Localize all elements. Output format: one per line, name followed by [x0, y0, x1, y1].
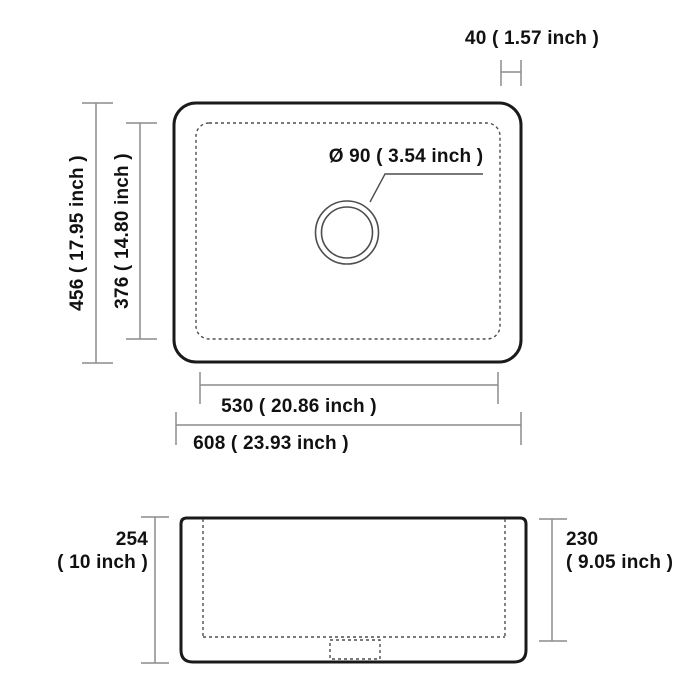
- dim-label-outer-depth-mm: 254: [57, 528, 148, 551]
- dim-label-inner-depth: 230 ( 9.05 inch ): [566, 528, 673, 574]
- dim-label-outer-depth-inch: ( 10 inch ): [57, 551, 148, 574]
- dim-label-outer-width: 608 ( 23.93 inch ): [193, 433, 349, 455]
- drawing-lines-layer: [0, 0, 700, 700]
- sink-side-view: [181, 518, 526, 662]
- sink-side-view-outline: [181, 518, 526, 662]
- dim-line-inner-depth: [539, 519, 567, 641]
- sink-dimension-diagram: 40 ( 1.57 inch ) Ø 90 ( 3.54 inch ) 456 …: [0, 0, 700, 700]
- drain-circle-outer: [316, 201, 379, 264]
- dim-label-outer-height: 456 ( 17.95 inch ): [67, 155, 89, 311]
- dim-label-inner-depth-inch: ( 9.05 inch ): [566, 551, 673, 574]
- dim-label-inner-height: 376 ( 14.80 inch ): [112, 153, 134, 309]
- dim-label-rim-offset: 40 ( 1.57 inch ): [465, 28, 599, 50]
- dim-label-outer-depth: 254 ( 10 inch ): [57, 528, 148, 574]
- dim-label-inner-width: 530 ( 20.86 inch ): [221, 396, 377, 418]
- dim-line-rim-offset: [501, 60, 521, 86]
- dim-label-drain-diameter: Ø 90 ( 3.54 inch ): [329, 146, 484, 168]
- sink-top-view: [174, 103, 521, 362]
- dim-label-inner-depth-mm: 230: [566, 528, 673, 551]
